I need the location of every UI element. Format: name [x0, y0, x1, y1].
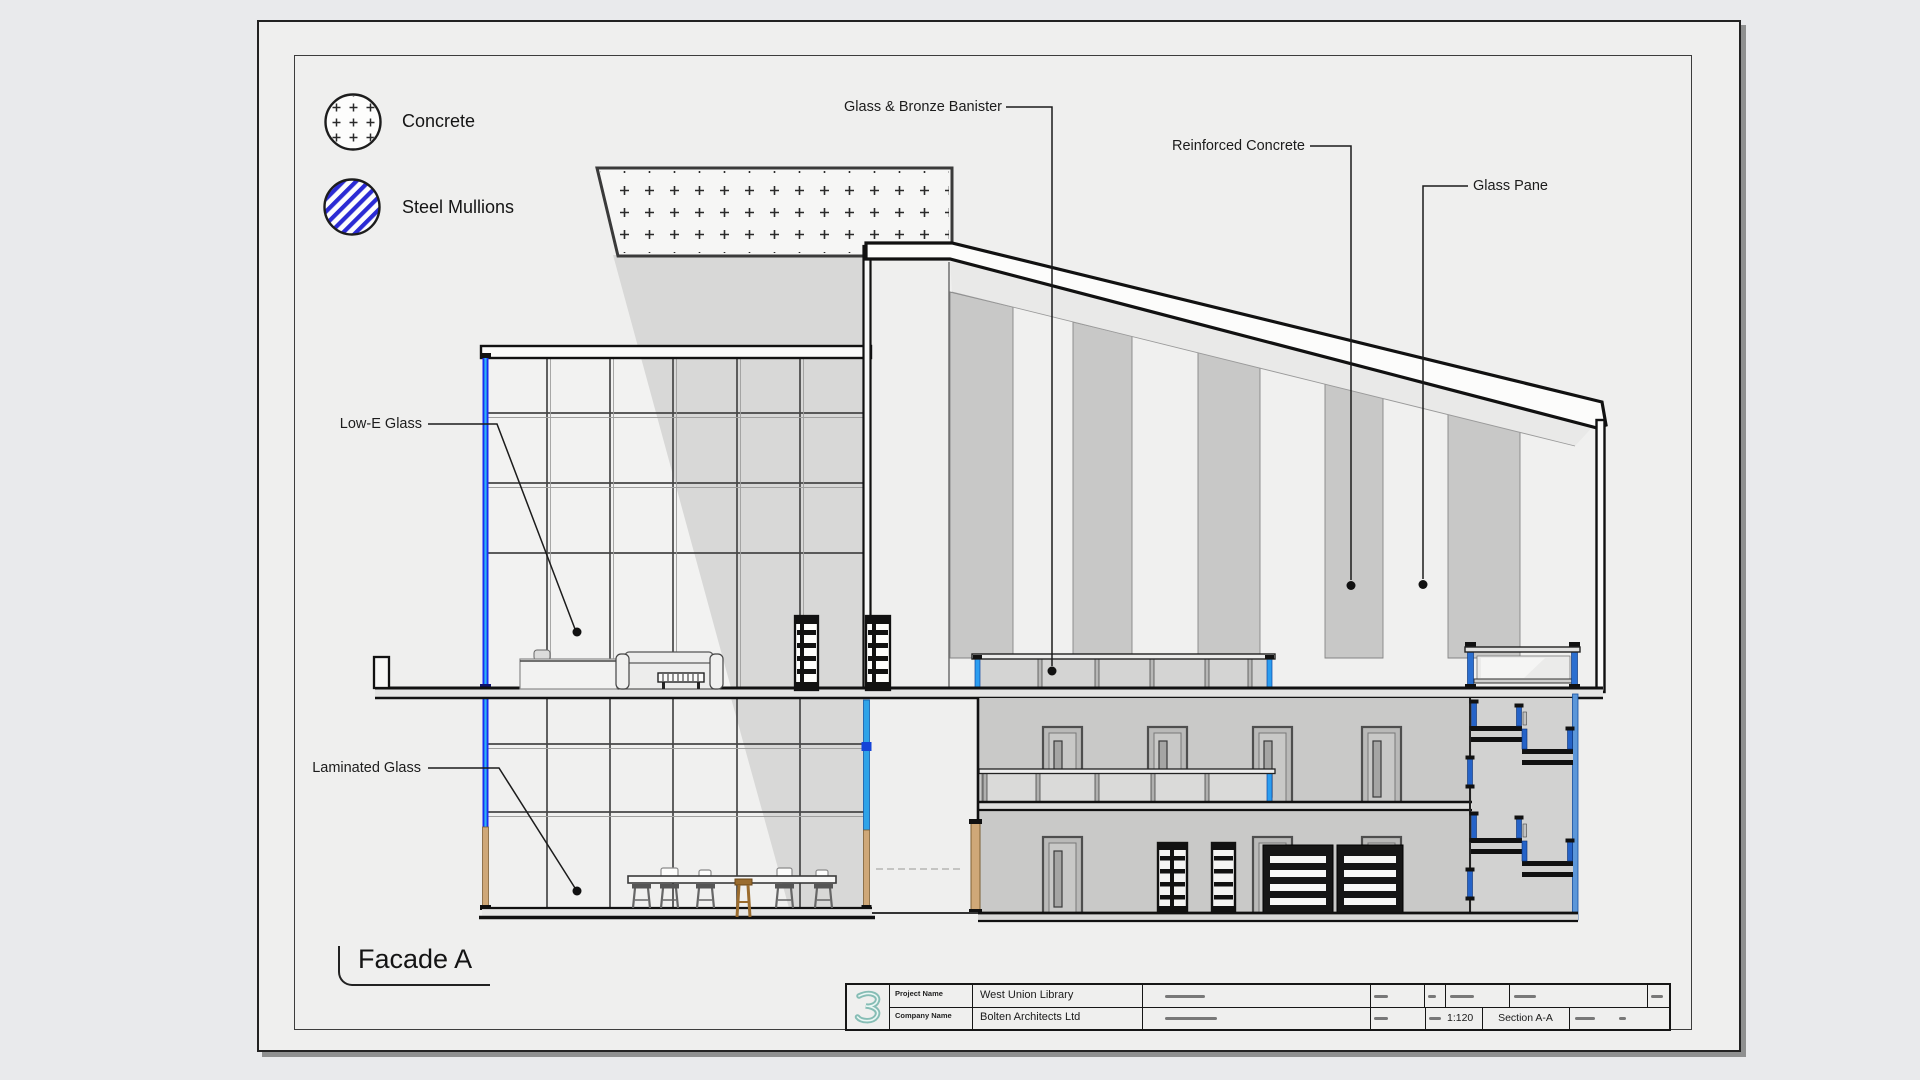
callout-low-e-glass: Low-E Glass	[330, 416, 422, 432]
project-name-label: Project Name	[895, 989, 943, 998]
company-name-label: Company Name	[895, 1011, 952, 1020]
scale-value: 1:120	[1447, 1012, 1473, 1024]
legend-label-steel-mullions: Steel Mullions	[402, 197, 514, 218]
title-block: Project Name West Union Library Company …	[845, 983, 1671, 1031]
callout-glass-pane: Glass Pane	[1473, 178, 1548, 194]
company-logo	[850, 989, 888, 1025]
callout-reinforced-concrete: Reinforced Concrete	[1160, 138, 1305, 154]
view-title: Facade A	[358, 944, 472, 975]
callout-laminated-glass: Laminated Glass	[300, 760, 421, 776]
legend-label-concrete: Concrete	[402, 111, 475, 132]
callout-glass-bronze-banister: Glass & Bronze Banister	[830, 99, 1002, 115]
drawing-name: Section A-A	[1482, 1012, 1569, 1024]
company-name-value: Bolten Architects Ltd	[980, 1011, 1080, 1023]
drawing-sheet-page: Concrete Steel Mullions Glass & Bronze B…	[0, 0, 1920, 1080]
project-name-value: West Union Library	[980, 989, 1073, 1001]
